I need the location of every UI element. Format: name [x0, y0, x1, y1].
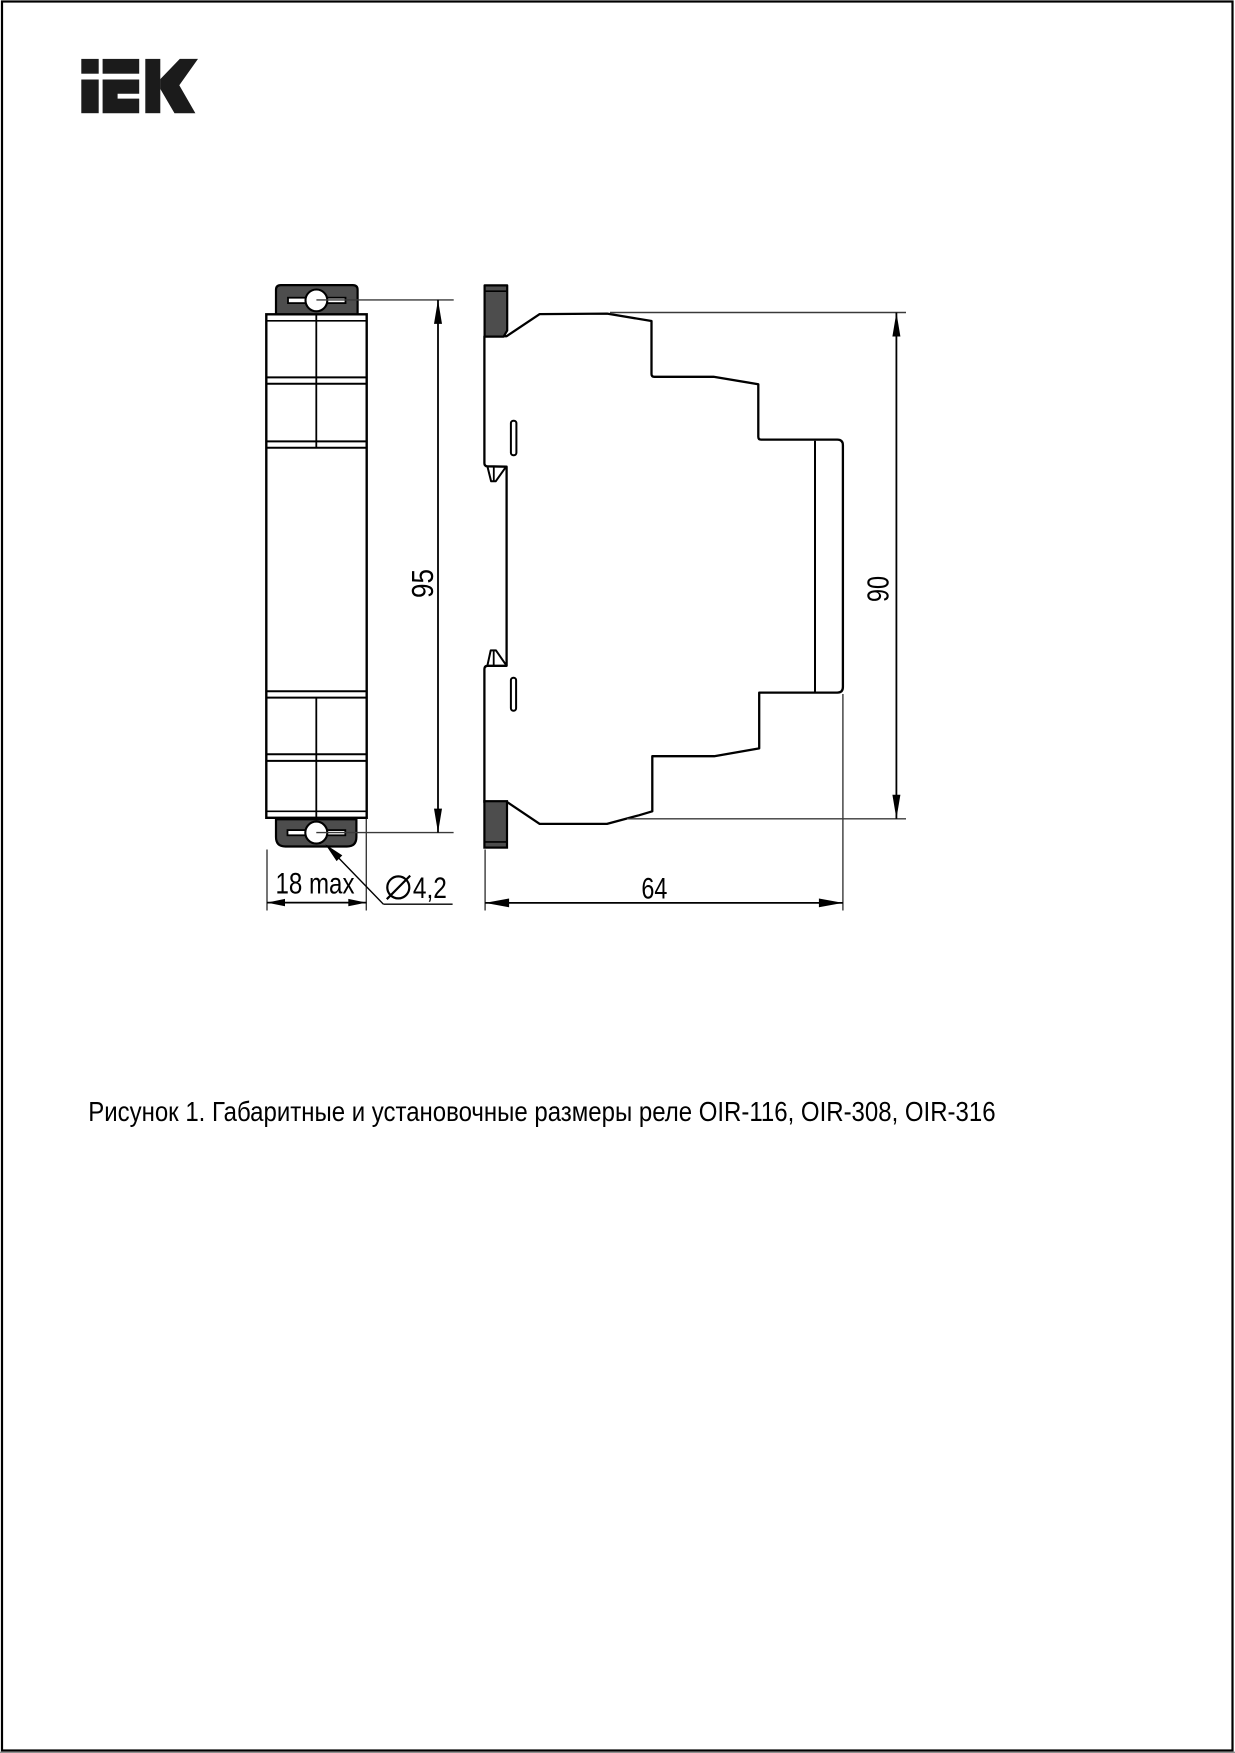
- svg-text:64: 64: [641, 872, 667, 905]
- svg-text:95: 95: [406, 569, 440, 598]
- svg-text:90: 90: [862, 576, 896, 602]
- svg-text:4,2: 4,2: [413, 872, 447, 905]
- svg-text:Рисунок 1. Габаритные и устано: Рисунок 1. Габаритные и установочные раз…: [88, 1095, 995, 1127]
- svg-text:18 max: 18 max: [276, 867, 355, 900]
